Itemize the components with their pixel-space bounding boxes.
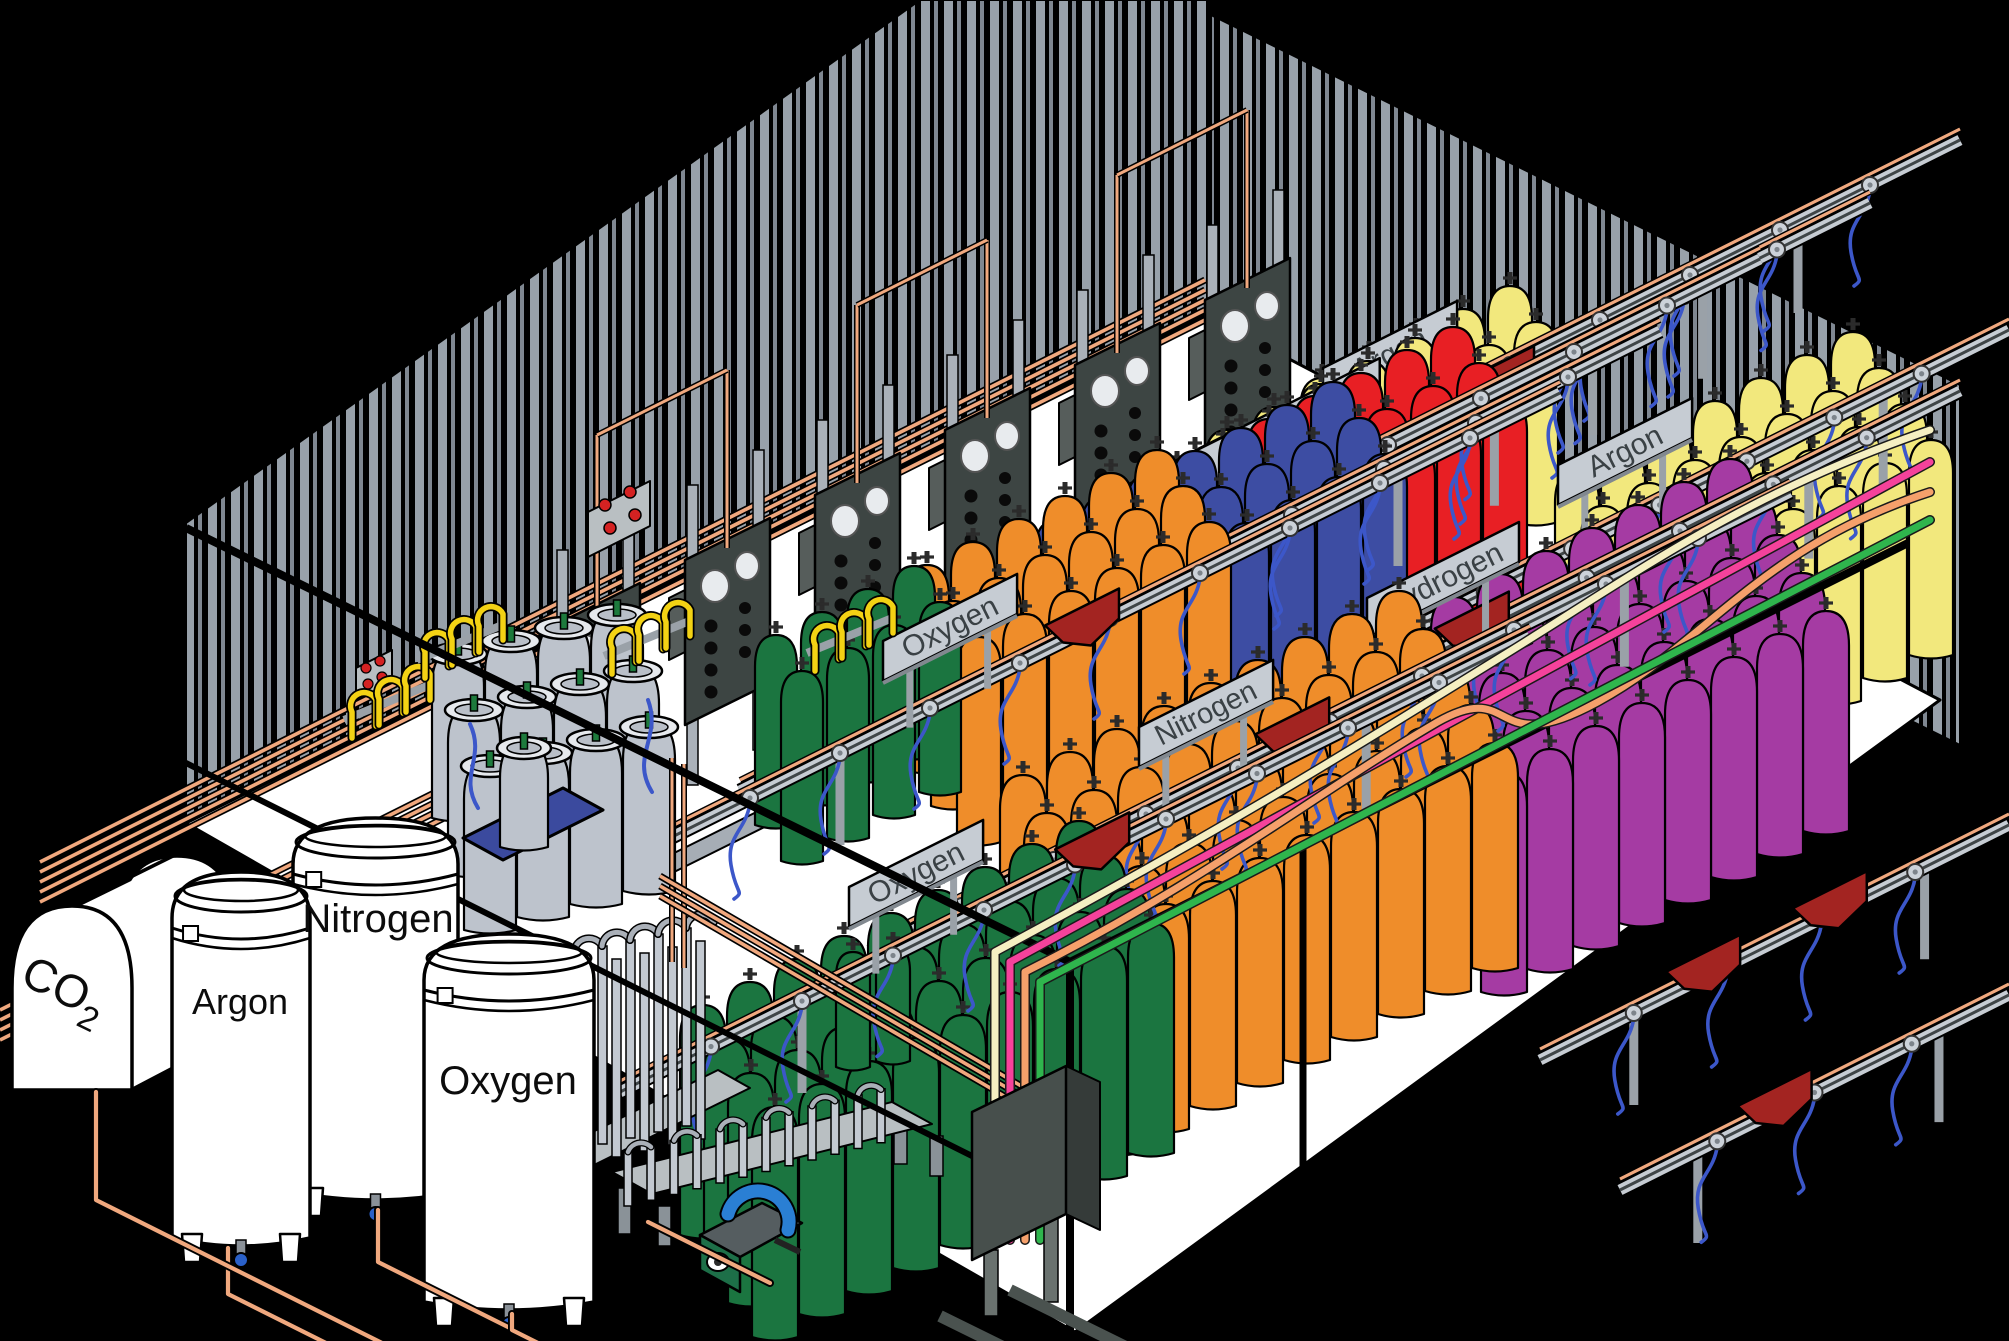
fill-valve-hub — [890, 953, 895, 958]
tank-valve-handle — [234, 1253, 248, 1267]
gas-cylinder — [1190, 881, 1236, 1110]
fill-valve-hub — [1345, 725, 1350, 730]
indicator-light — [624, 486, 636, 498]
vaporizer-fin — [626, 940, 635, 1138]
gauge-dial — [961, 440, 989, 472]
fill-hose — [1895, 877, 1915, 973]
panel-port — [705, 642, 718, 655]
tank-label-oxygen: Oxygen — [439, 1059, 577, 1103]
gauge-dial — [1255, 292, 1279, 320]
rack-row — [1620, 984, 2009, 1243]
fill-valve-hub — [799, 998, 804, 1003]
gauge-dial — [1221, 310, 1249, 342]
indicator-light — [375, 656, 385, 666]
panel-port — [869, 537, 881, 549]
tank-valve — [371, 1194, 381, 1208]
band-buckle — [306, 872, 321, 887]
cylinder-cart — [1666, 935, 1740, 992]
gas-cylinder — [1619, 703, 1665, 927]
panel-leg — [984, 1250, 998, 1316]
fill-valve-hub — [1287, 525, 1292, 530]
fill-valve-hub — [1467, 435, 1472, 440]
dewar-valve — [561, 613, 568, 629]
gauge-dial — [865, 487, 889, 515]
farm-copper-pipe — [228, 1248, 424, 1341]
vaporizer-fin — [612, 959, 621, 1157]
panel-port — [1095, 447, 1108, 460]
panel-port — [965, 490, 978, 503]
panel-port — [739, 602, 751, 614]
fill-valve-hub — [1597, 317, 1602, 322]
vaporizer-fin — [624, 1152, 632, 1206]
panel-port — [1129, 429, 1141, 441]
gas-cylinder — [1665, 680, 1711, 904]
vaporizer-fin — [831, 1100, 839, 1154]
vaporizer-fin — [647, 1146, 655, 1200]
fill-valve-hub — [1687, 272, 1692, 277]
gas-cylinder — [1803, 611, 1849, 835]
gas-cylinder — [1331, 812, 1377, 1041]
fill-valve-hub — [1017, 660, 1022, 665]
gas-plant-isometric-diagram: ArgonCarbon DioxideHeliumNitrogenOxygenA… — [0, 0, 2009, 1341]
tank-valve — [236, 1240, 246, 1254]
gauge-dial — [701, 570, 729, 602]
fill-hose — [1892, 1049, 1912, 1145]
gas-cylinder — [1711, 657, 1757, 881]
vaporizer-fin — [716, 1129, 724, 1183]
fill-valve-hub — [1913, 869, 1918, 874]
panel-port — [1129, 407, 1141, 419]
fill-valve-hub — [1478, 396, 1483, 401]
panel-side-tab — [1059, 395, 1075, 465]
fill-valve-hub — [1774, 247, 1779, 252]
rail-copper-pipe — [1620, 984, 2009, 1179]
gas-cylinder — [1284, 835, 1330, 1064]
dewar-valve — [471, 695, 478, 711]
gas-cylinder — [1378, 789, 1424, 1018]
fill-valve-hub — [1436, 680, 1441, 685]
tank-leg — [564, 1298, 584, 1326]
vaporizer-fin — [654, 934, 663, 1132]
dewar-valve — [614, 600, 621, 616]
fill-valve-hub — [837, 750, 842, 755]
cylinder-cart — [1793, 871, 1867, 928]
fill-valve-hub — [1744, 459, 1749, 464]
panel-port — [835, 577, 848, 590]
band-buckle — [438, 988, 453, 1003]
gas-cylinder — [1237, 858, 1283, 1087]
panel-foot — [940, 1316, 1070, 1341]
panel-port — [835, 555, 848, 568]
dewar-valve — [487, 751, 494, 767]
panel-port — [1259, 342, 1271, 354]
fill-hose — [1802, 924, 1822, 1020]
panel-port — [1225, 404, 1238, 417]
fill-valve-hub — [1864, 435, 1869, 440]
tank-label-argon: Argon — [192, 981, 288, 1022]
panel-port — [705, 686, 718, 699]
panel-leg — [1044, 1218, 1058, 1302]
vaporizer-fin — [739, 1123, 747, 1177]
panel-port — [999, 472, 1011, 484]
dewar-valve — [577, 669, 584, 685]
fill-valve-hub — [1197, 570, 1202, 575]
gauge-dial — [995, 422, 1019, 450]
panel-port — [1225, 382, 1238, 395]
fill-valve-hub — [1777, 227, 1782, 232]
fill-valve-hub — [1571, 349, 1576, 354]
gas-cylinder — [1425, 766, 1471, 995]
fill-valve-hub — [1715, 1139, 1720, 1144]
fill-valve-hub — [1377, 480, 1382, 485]
panel-side-tab — [929, 460, 945, 530]
fill-valve-hub — [1254, 771, 1259, 776]
panel-port — [705, 620, 718, 633]
panel-port — [739, 646, 751, 658]
panel-port — [999, 494, 1011, 506]
fill-valve-hub — [1909, 1041, 1914, 1046]
fill-valve-hub — [981, 907, 986, 912]
vaporizer-fin — [785, 1112, 793, 1166]
gas-cylinder — [1573, 726, 1619, 950]
farm-pipe-outline — [512, 1314, 562, 1341]
tank-leg — [280, 1234, 300, 1262]
vaporizer-fin — [640, 953, 649, 1151]
gas-cylinder — [1527, 749, 1573, 973]
indicator-light — [604, 522, 616, 534]
gauge-dial — [831, 505, 859, 537]
fill-valve-hub — [1163, 816, 1168, 821]
panel-port — [869, 559, 881, 571]
panel-port — [739, 624, 751, 636]
gas-cylinder — [1472, 743, 1518, 972]
plant-illustration-stage: ArgonCarbon DioxideHeliumNitrogenOxygenA… — [0, 0, 2009, 1341]
gauge-dial — [1091, 375, 1119, 407]
fill-valve-hub — [927, 705, 932, 710]
band-buckle — [183, 926, 198, 941]
panel-port — [1095, 425, 1108, 438]
gauge-dial — [1125, 357, 1149, 385]
fill-valve-hub — [1919, 371, 1924, 376]
fill-valve-hub — [1664, 303, 1669, 308]
panel-port — [705, 664, 718, 677]
farm-pipe-outline — [228, 1248, 424, 1341]
panel-side — [1066, 1066, 1100, 1230]
dewar-valve — [508, 626, 515, 642]
gas-cylinder — [1757, 634, 1803, 858]
indicator-light — [361, 663, 371, 673]
panel-port — [835, 599, 848, 612]
cylinder-cart — [1738, 1069, 1812, 1126]
vaporizer-fin — [762, 1118, 770, 1172]
gauge-dial — [735, 552, 759, 580]
fill-valve-hub — [1565, 374, 1570, 379]
vaporizer-fin — [877, 1089, 885, 1143]
tank-label-nitrogen: Nitrogen — [302, 897, 453, 941]
panel-port — [965, 512, 978, 525]
panel-port — [1225, 360, 1238, 373]
fill-valve-hub — [1832, 415, 1837, 420]
vaporizer-fin — [670, 1141, 678, 1195]
indicator-light — [629, 509, 641, 521]
indicator-light — [363, 679, 373, 689]
fill-valve-hub — [708, 1044, 713, 1049]
vaporizer-fin — [693, 1135, 701, 1189]
indicator-light — [599, 499, 611, 511]
panel-side-tab — [799, 525, 815, 595]
panel-port — [1259, 386, 1271, 398]
dewar-valve — [521, 733, 528, 749]
vaporizer-fin — [808, 1106, 816, 1160]
gas-cylinder — [1128, 923, 1174, 1157]
fill-valve-hub — [1631, 1010, 1636, 1015]
panel-port — [1259, 364, 1271, 376]
vaporizer-fin — [668, 947, 677, 1145]
panel-side-tab — [1189, 330, 1205, 400]
fill-valve-hub — [1867, 182, 1872, 187]
vaporizer-fin — [696, 941, 705, 1139]
